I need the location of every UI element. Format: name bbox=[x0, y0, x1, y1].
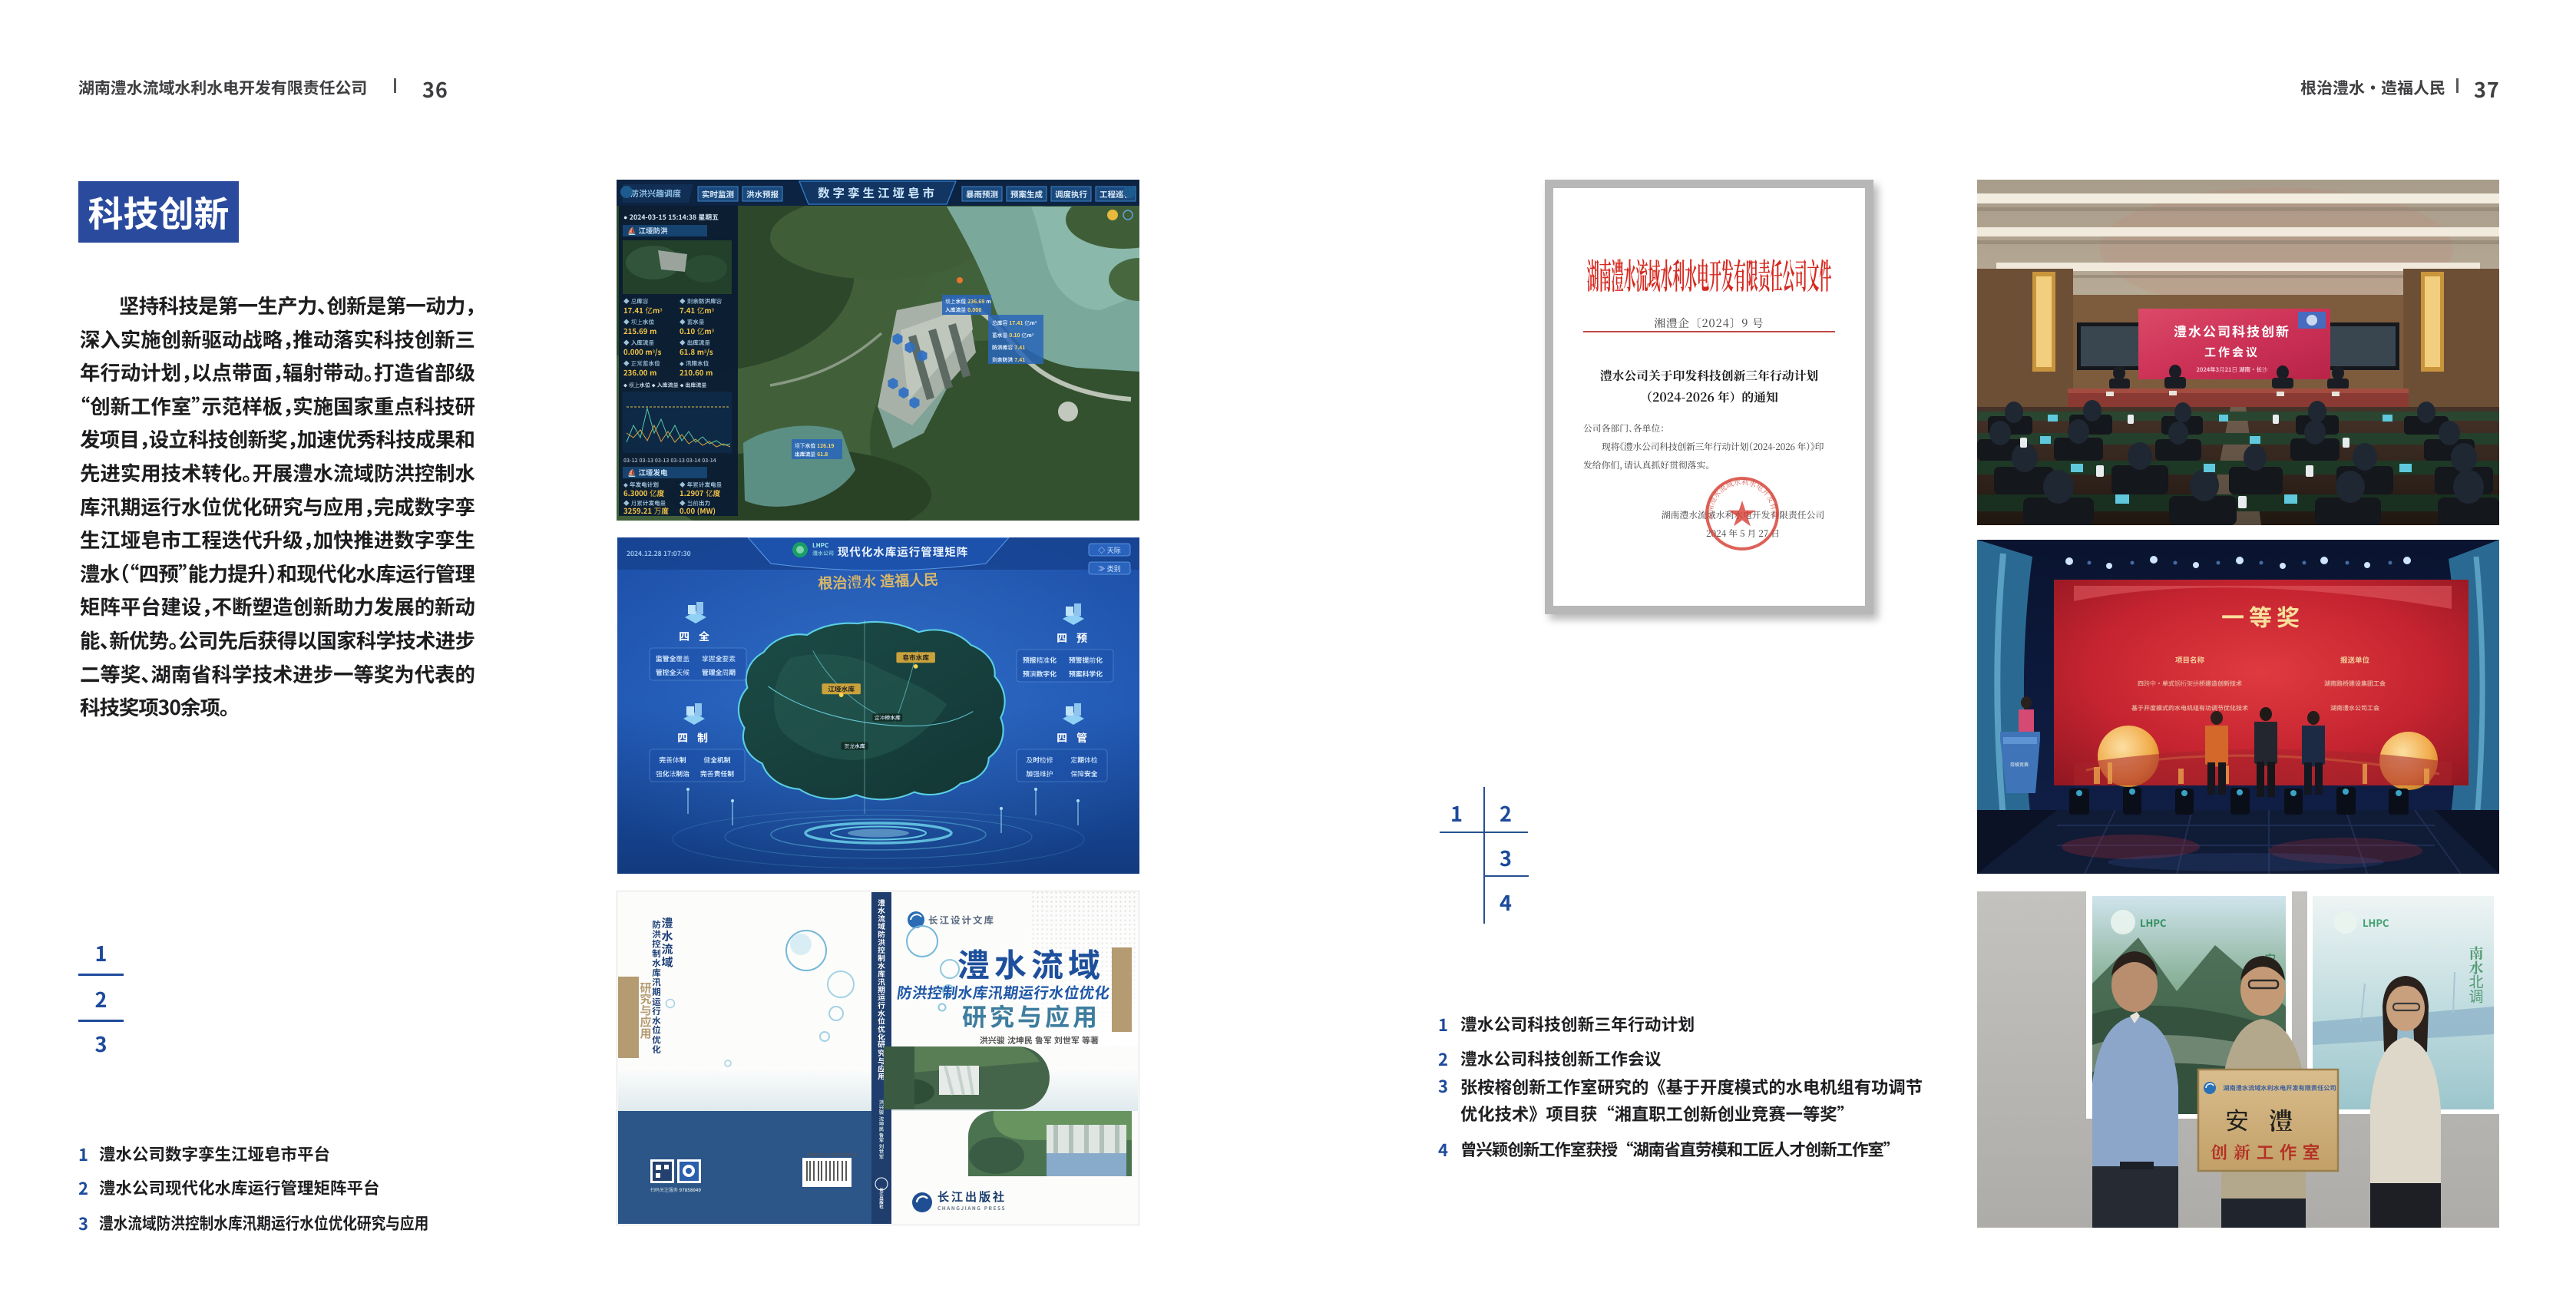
svg-text:0.000 m³/s: 0.000 m³/s bbox=[623, 346, 662, 357]
svg-text:LHPC: LHPC bbox=[2363, 915, 2389, 930]
svg-text:安澧: 安澧 bbox=[2225, 1102, 2313, 1136]
svg-text:蓄水量 0.10 亿m³: 蓄水量 0.10 亿m³ bbox=[992, 331, 1034, 339]
svg-text:南水北调: 南水北调 bbox=[2466, 945, 2487, 1003]
svg-text:强化法制治: 强化法制治 bbox=[656, 769, 689, 779]
svg-text:四 制: 四 制 bbox=[677, 730, 711, 746]
svg-text:0.10 亿m³: 0.10 亿m³ bbox=[680, 326, 714, 336]
svg-text:长江出版社: 长江出版社 bbox=[937, 1189, 1007, 1205]
svg-text:澧水流域: 澧水流域 bbox=[660, 917, 676, 969]
svg-text:健全机制: 健全机制 bbox=[703, 755, 730, 765]
svg-text:洪兴骏 沈坤民 鲁军 刘世军 等著: 洪兴骏 沈坤民 鲁军 刘世军 等著 bbox=[980, 1034, 1099, 1046]
svg-text:完善体制: 完善体制 bbox=[659, 755, 686, 765]
svg-text:≫ 类别: ≫ 类别 bbox=[1098, 564, 1121, 574]
svg-text:ISBN 978-7-5492-9563-9: ISBN 978-7-5492-9563-9 bbox=[807, 1152, 857, 1158]
svg-text:贺龙水库: 贺龙水库 bbox=[845, 742, 865, 749]
svg-text:出库流量 61.8: 出库流量 61.8 bbox=[795, 450, 828, 458]
svg-text:坝上水位 236.69 m: 坝上水位 236.69 m bbox=[945, 297, 991, 305]
svg-text:防洪兴趣调度: 防洪兴趣调度 bbox=[630, 187, 681, 200]
svg-text:基于开度模式的水电机组有功调节优化技术: 基于开度模式的水电机组有功调节优化技术 bbox=[2131, 704, 2248, 713]
svg-text:掌握全要素: 掌握全要素 bbox=[702, 653, 736, 663]
svg-text:61.8 m³/s: 61.8 m³/s bbox=[680, 346, 713, 357]
svg-text:湖南澧水公司工会: 湖南澧水公司工会 bbox=[2330, 704, 2379, 713]
svg-text:剩余防洪 7.41: 剩余防洪 7.41 bbox=[992, 355, 1025, 363]
svg-text:创新工作室: 创新工作室 bbox=[2211, 1140, 2326, 1164]
svg-text:项目名称: 项目名称 bbox=[2175, 654, 2205, 665]
svg-text:暴雨预测: 暴雨预测 bbox=[966, 189, 998, 200]
svg-text:预演数字化: 预演数字化 bbox=[1023, 669, 1057, 679]
svg-text:监管全覆盖: 监管全覆盖 bbox=[656, 653, 689, 663]
svg-text:定期体检: 定期体检 bbox=[1070, 755, 1097, 765]
svg-text:澧水流域: 澧水流域 bbox=[957, 940, 1105, 987]
svg-text:管理全周期: 管理全周期 bbox=[702, 667, 736, 677]
svg-text:一等奖: 一等奖 bbox=[2221, 599, 2304, 633]
svg-text:2024年3月21日 湖南·长沙: 2024年3月21日 湖南·长沙 bbox=[2196, 365, 2268, 374]
svg-text:长江出版社: 长江出版社 bbox=[878, 1187, 885, 1208]
svg-text:江垭水库: 江垭水库 bbox=[828, 685, 855, 694]
svg-text:2024.12.28 17:07:30: 2024.12.28 17:07:30 bbox=[627, 549, 691, 558]
svg-text:四跨中·单式钢桁架拱桥建造创新技术: 四跨中·单式钢桁架拱桥建造创新技术 bbox=[2138, 679, 2242, 688]
svg-text:研究与应用: 研究与应用 bbox=[962, 998, 1100, 1033]
svg-text:⬥ 坝上水位 ⬥ 入库流量 ⬥ 出库流量: ⬥ 坝上水位 ⬥ 入库流量 ⬥ 出库流量 bbox=[623, 382, 706, 389]
svg-text:3259.21 万度: 3259.21 万度 bbox=[623, 505, 669, 516]
svg-text:管控全天候: 管控全天候 bbox=[656, 667, 689, 677]
svg-text:湖南路桥建设集团工会: 湖南路桥建设集团工会 bbox=[2324, 679, 2386, 688]
svg-text:215.69 m: 215.69 m bbox=[623, 326, 656, 336]
svg-text:◇ 天际: ◇ 天际 bbox=[1098, 545, 1121, 555]
svg-text:预案生成: 预案生成 bbox=[1010, 189, 1043, 200]
svg-text:预警提前化: 预警提前化 bbox=[1069, 655, 1103, 665]
svg-text:现代化水库运行管理矩阵: 现代化水库运行管理矩阵 bbox=[838, 544, 969, 560]
svg-text:LHPC: LHPC bbox=[812, 541, 829, 550]
svg-text:⛵ 江垭防洪: ⛵ 江垭防洪 bbox=[627, 225, 668, 236]
svg-text:总库容 17.41 亿m³: 总库容 17.41 亿m³ bbox=[992, 319, 1037, 326]
svg-text:17.41 亿m³: 17.41 亿m³ bbox=[623, 305, 662, 316]
svg-text:⛵ 江垭发电: ⛵ 江垭发电 bbox=[627, 467, 668, 478]
svg-text:210.60 m: 210.60 m bbox=[680, 367, 713, 378]
svg-text:洪水预报: 洪水预报 bbox=[746, 189, 779, 200]
svg-text:入库流量 0.000: 入库流量 0.000 bbox=[945, 306, 981, 313]
svg-text:根治澧水 造福人民: 根治澧水 造福人民 bbox=[818, 568, 939, 593]
svg-text:LHPC: LHPC bbox=[2140, 915, 2167, 930]
svg-text:预报精准化: 预报精准化 bbox=[1023, 655, 1057, 665]
svg-text:报送单位: 报送单位 bbox=[2340, 654, 2370, 665]
svg-text:● 2024-03-15 15:14:38 星期五: ● 2024-03-15 15:14:38 星期五 bbox=[623, 212, 719, 222]
svg-text:四 预: 四 预 bbox=[1057, 630, 1090, 646]
svg-text:加强维护: 加强维护 bbox=[1026, 769, 1053, 779]
svg-text:澧水公司科技创新: 澧水公司科技创新 bbox=[2174, 321, 2290, 340]
svg-text:0.00 (MW): 0.00 (MW) bbox=[680, 505, 716, 516]
svg-text:6.3000 亿度: 6.3000 亿度 bbox=[623, 488, 665, 498]
svg-text:236.00 m: 236.00 m bbox=[623, 367, 656, 378]
svg-text:实时监测: 实时监测 bbox=[702, 189, 734, 200]
svg-text:7.41 亿m³: 7.41 亿m³ bbox=[680, 305, 714, 316]
svg-text:完善责任制: 完善责任制 bbox=[700, 769, 734, 779]
svg-text:四 管: 四 管 bbox=[1057, 730, 1090, 746]
svg-text:劳模竞赛: 劳模竞赛 bbox=[2010, 761, 2029, 768]
svg-text:扫码关注服务 97858049: 扫码关注服务 97858049 bbox=[650, 1186, 701, 1193]
svg-text:皂市水库: 皂市水库 bbox=[902, 653, 929, 663]
svg-text:长江设计文库: 长江设计文库 bbox=[928, 912, 995, 927]
svg-text:保障安全: 保障安全 bbox=[1070, 769, 1097, 779]
svg-text:CHANGJIANG PRESS: CHANGJIANG PRESS bbox=[937, 1204, 1006, 1212]
svg-text:防洪库容 7.41: 防洪库容 7.41 bbox=[992, 343, 1025, 351]
svg-text:及时检修: 及时检修 bbox=[1026, 755, 1053, 765]
svg-text:工作会议: 工作会议 bbox=[2204, 344, 2260, 360]
svg-text:03-12 03-13 03-13 03-13 03-14: 03-12 03-13 03-13 03-13 03-14 03-14 bbox=[623, 456, 716, 464]
svg-text:澧水公司: 澧水公司 bbox=[812, 550, 834, 557]
svg-text:四 全: 四 全 bbox=[679, 629, 713, 644]
svg-text:湖南澧水流域水利水电开发有限责任公司: 湖南澧水流域水利水电开发有限责任公司 bbox=[2223, 1083, 2336, 1093]
svg-text:宜冲桥水库: 宜冲桥水库 bbox=[875, 713, 901, 721]
svg-text:预案科学化: 预案科学化 bbox=[1069, 669, 1103, 679]
svg-text:1.2907 亿度: 1.2907 亿度 bbox=[680, 488, 721, 498]
svg-text:坝下水位 126.19: 坝下水位 126.19 bbox=[795, 441, 834, 449]
svg-text:数字孪生江垭皂市: 数字孪生江垭皂市 bbox=[818, 184, 937, 201]
svg-text:调度执行: 调度执行 bbox=[1055, 189, 1087, 200]
